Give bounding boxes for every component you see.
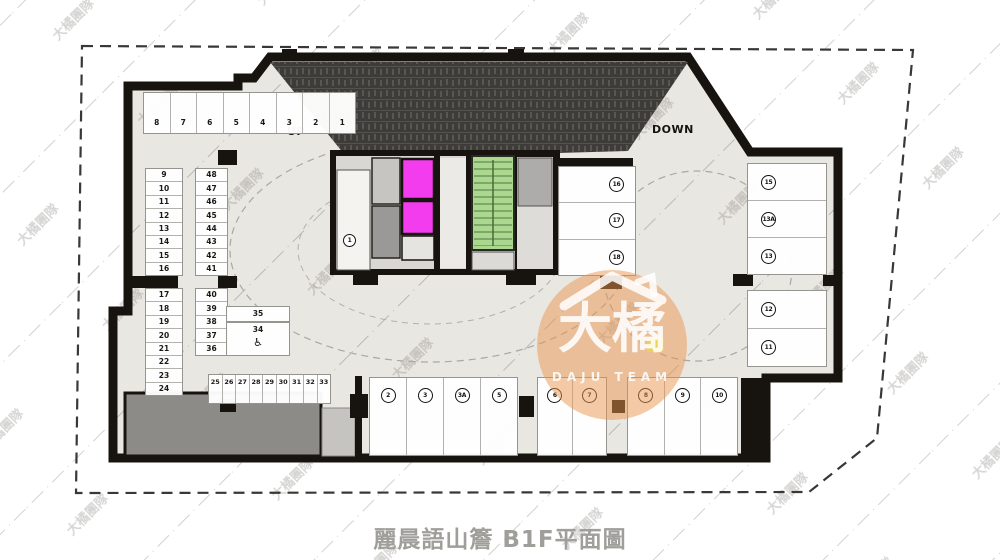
- stall-number: 34: [253, 326, 263, 334]
- parking-stall: 8: [144, 93, 171, 133]
- unit-parking-stall: 8: [628, 378, 665, 455]
- parking-stall: 25: [209, 375, 223, 403]
- stall-number: 3: [287, 119, 292, 127]
- core-parking-stall-1-area: [337, 170, 370, 270]
- stall-number: 6: [207, 119, 212, 127]
- parking-stall: 10: [146, 182, 182, 195]
- stall-number: 41: [206, 265, 216, 273]
- stall-number: 35: [253, 310, 263, 318]
- parking-stall: 28: [250, 375, 264, 403]
- parking-stall: 24: [146, 383, 182, 395]
- parking-stall: 18: [146, 302, 182, 315]
- unit-number: 17: [609, 213, 624, 228]
- stall-group-top-row: 87654321: [143, 92, 356, 134]
- unit-parking-stall: 5: [481, 378, 517, 455]
- unit-number: 1: [348, 237, 352, 244]
- core-room-upper: [372, 158, 400, 204]
- parking-stall: 6: [197, 93, 224, 133]
- parking-stall: 31: [290, 375, 304, 403]
- unit-parking-stall: 16: [559, 167, 635, 203]
- parking-stall: 32: [304, 375, 318, 403]
- parking-stall: 23: [146, 369, 182, 382]
- parking-stall: 2: [303, 93, 330, 133]
- stall-number: 9: [161, 171, 166, 179]
- stall-number: 45: [206, 212, 216, 220]
- elevator-lobby-room: [402, 236, 434, 260]
- parking-stall: 9: [146, 169, 182, 182]
- unit-parking-stall: 13A: [748, 201, 826, 238]
- unit-number: 6: [547, 388, 562, 403]
- parking-stall: 22: [146, 356, 182, 369]
- stall-number: 39: [206, 305, 216, 313]
- stall-number: 38: [206, 318, 216, 326]
- stall-number: 29: [265, 379, 274, 386]
- page-title: 麗晨語山簷 B1F平面圖: [0, 520, 1000, 554]
- stall-number: 20: [159, 332, 169, 340]
- parking-stall: 5: [224, 93, 251, 133]
- unit-number: 13A: [761, 212, 776, 227]
- unit-group-2-5: 233A5: [369, 377, 518, 456]
- parking-stall: 47: [196, 182, 227, 195]
- unit-number: 11: [761, 340, 776, 355]
- parking-stall: 21: [146, 343, 182, 356]
- unit-parking-stall: 12: [748, 291, 826, 329]
- unit-number: 5: [492, 388, 507, 403]
- parking-stall: 16: [146, 263, 182, 275]
- unit-group-12-11: 1211: [747, 290, 827, 367]
- parking-stall: 43: [196, 236, 227, 249]
- parking-stall: 29: [263, 375, 277, 403]
- parking-stall: 41: [196, 263, 227, 275]
- unit-stall-1: 1: [343, 234, 356, 247]
- parking-stall: 7: [171, 93, 198, 133]
- stall-number: 5: [234, 119, 239, 127]
- unit-group-6-7: 67: [537, 377, 607, 456]
- core-room-lower: [372, 206, 400, 258]
- stall-number: 17: [159, 291, 169, 299]
- stall-number: 48: [206, 171, 216, 179]
- core-corridor: [440, 158, 466, 268]
- unit-number: 3A: [455, 388, 470, 403]
- stall-number: 13: [159, 225, 169, 233]
- stall-number: 36: [206, 345, 216, 353]
- unit-parking-stall: 18: [559, 240, 635, 275]
- unit-parking-stall: 13: [748, 238, 826, 274]
- parking-stall: 14: [146, 236, 182, 249]
- stall-group-25-33: 252627282930313233: [208, 374, 331, 404]
- parking-stall: 3: [277, 93, 304, 133]
- unit-parking-stall: 9: [665, 378, 702, 455]
- ramp-down-label: DOWN: [652, 123, 694, 136]
- stall-number: 22: [159, 358, 169, 366]
- stall-group-17-24: 1718192021222324: [145, 288, 183, 396]
- stall-number: 16: [159, 265, 169, 273]
- stall-number: 15: [159, 252, 169, 260]
- parking-stall: 39: [196, 302, 227, 315]
- parking-stall: 36: [196, 343, 227, 355]
- stall-number: 28: [251, 379, 260, 386]
- stall-number: 7: [181, 119, 186, 127]
- unit-group-8-10: 8910: [627, 377, 738, 456]
- parking-stall: 40: [196, 289, 227, 302]
- unit-parking-stall: 11: [748, 329, 826, 366]
- stall-number: 26: [224, 379, 233, 386]
- unit-number: 12: [761, 302, 776, 317]
- unit-number: 8: [638, 388, 653, 403]
- stall-number: 30: [279, 379, 288, 386]
- stall-number: 8: [154, 119, 159, 127]
- parking-stall: 20: [146, 329, 182, 342]
- parking-stall: 17: [146, 289, 182, 302]
- stall-number: 14: [159, 238, 169, 246]
- stall-number: 37: [206, 332, 216, 340]
- parking-stall: 27: [236, 375, 250, 403]
- parking-stall: 42: [196, 249, 227, 262]
- stair-landing-room: [472, 252, 514, 270]
- stall-number: 32: [306, 379, 315, 386]
- stall-number: 21: [159, 345, 169, 353]
- stall-number: 43: [206, 238, 216, 246]
- parking-stall: 11: [146, 196, 182, 209]
- stall-number: 27: [238, 379, 247, 386]
- unit-number: 7: [582, 388, 597, 403]
- unit-parking-stall: 15: [748, 164, 826, 201]
- parking-stall: 26: [223, 375, 237, 403]
- stall-group-40-36: 4039383736: [195, 288, 228, 356]
- stall-number: 2: [313, 119, 318, 127]
- stall-number: 44: [206, 225, 216, 233]
- parking-stall: 30: [277, 375, 291, 403]
- parking-stall: 15: [146, 249, 182, 262]
- parking-stall: 12: [146, 209, 182, 222]
- floor-plan-page: 大橘團隊 大橘團隊: [0, 0, 1000, 560]
- stall-number: 10: [159, 185, 169, 193]
- stall-number: 24: [159, 385, 169, 393]
- unit-parking-stall: 6: [538, 378, 573, 455]
- unit-parking-stall: 3: [407, 378, 444, 455]
- unit-parking-stall: 10: [701, 378, 737, 455]
- stall-number: 25: [211, 379, 220, 386]
- wheelchair-icon: ♿: [253, 337, 263, 348]
- stall-number: 47: [206, 185, 216, 193]
- stall-group-48-41: 4847464544434241: [195, 168, 228, 276]
- parking-stall: 45: [196, 209, 227, 222]
- parking-stall: 48: [196, 169, 227, 182]
- stall-34-accessible: 34 ♿: [226, 322, 290, 356]
- core-wall-a: [434, 155, 440, 269]
- parking-stall: 1: [330, 93, 356, 133]
- unit-parking-stall: 7: [573, 378, 607, 455]
- elevator-shaft-1: [402, 159, 434, 199]
- unit-number: 15: [761, 175, 776, 190]
- stall-number: 1: [340, 119, 345, 127]
- floor-plan-svg: 大橘團隊 大橘團隊: [0, 0, 1000, 560]
- unit-parking-stall: 3A: [444, 378, 481, 455]
- core-room-right-upper: [518, 158, 552, 206]
- stall-number: 33: [319, 379, 328, 386]
- unit-number: 3: [418, 388, 433, 403]
- parking-stall: 13: [146, 223, 182, 236]
- stall-number: 4: [260, 119, 265, 127]
- stall-number: 42: [206, 252, 216, 260]
- parking-stall: 44: [196, 223, 227, 236]
- parking-stall: 19: [146, 316, 182, 329]
- stall-number: 11: [159, 198, 169, 206]
- stall-number: 23: [159, 372, 169, 380]
- unit-parking-stall: 2: [370, 378, 407, 455]
- unit-group-16-18: 161718: [558, 166, 636, 276]
- stall-group-9-16: 910111213141516: [145, 168, 183, 276]
- stall-number: 40: [206, 291, 216, 299]
- stall-number: 46: [206, 198, 216, 206]
- parking-stall: 46: [196, 196, 227, 209]
- parking-stall: 37: [196, 329, 227, 342]
- parking-stall: 4: [250, 93, 277, 133]
- unit-number: 10: [712, 388, 727, 403]
- parking-stall: 38: [196, 316, 227, 329]
- stall-number: 12: [159, 212, 169, 220]
- unit-parking-stall: 17: [559, 203, 635, 239]
- unit-number: 16: [609, 177, 624, 192]
- unit-number: 9: [675, 388, 690, 403]
- unit-group-15-13: 1513A13: [747, 163, 827, 275]
- unit-number: 13: [761, 249, 776, 264]
- unit-number: 18: [609, 250, 624, 265]
- elevator-shaft-2: [402, 201, 434, 234]
- unit-number: 2: [381, 388, 396, 403]
- stall-number: 19: [159, 318, 169, 326]
- stall-35: 35: [226, 306, 290, 322]
- parking-stall: 33: [318, 375, 331, 403]
- stall-number: 18: [159, 305, 169, 313]
- stall-number: 31: [292, 379, 301, 386]
